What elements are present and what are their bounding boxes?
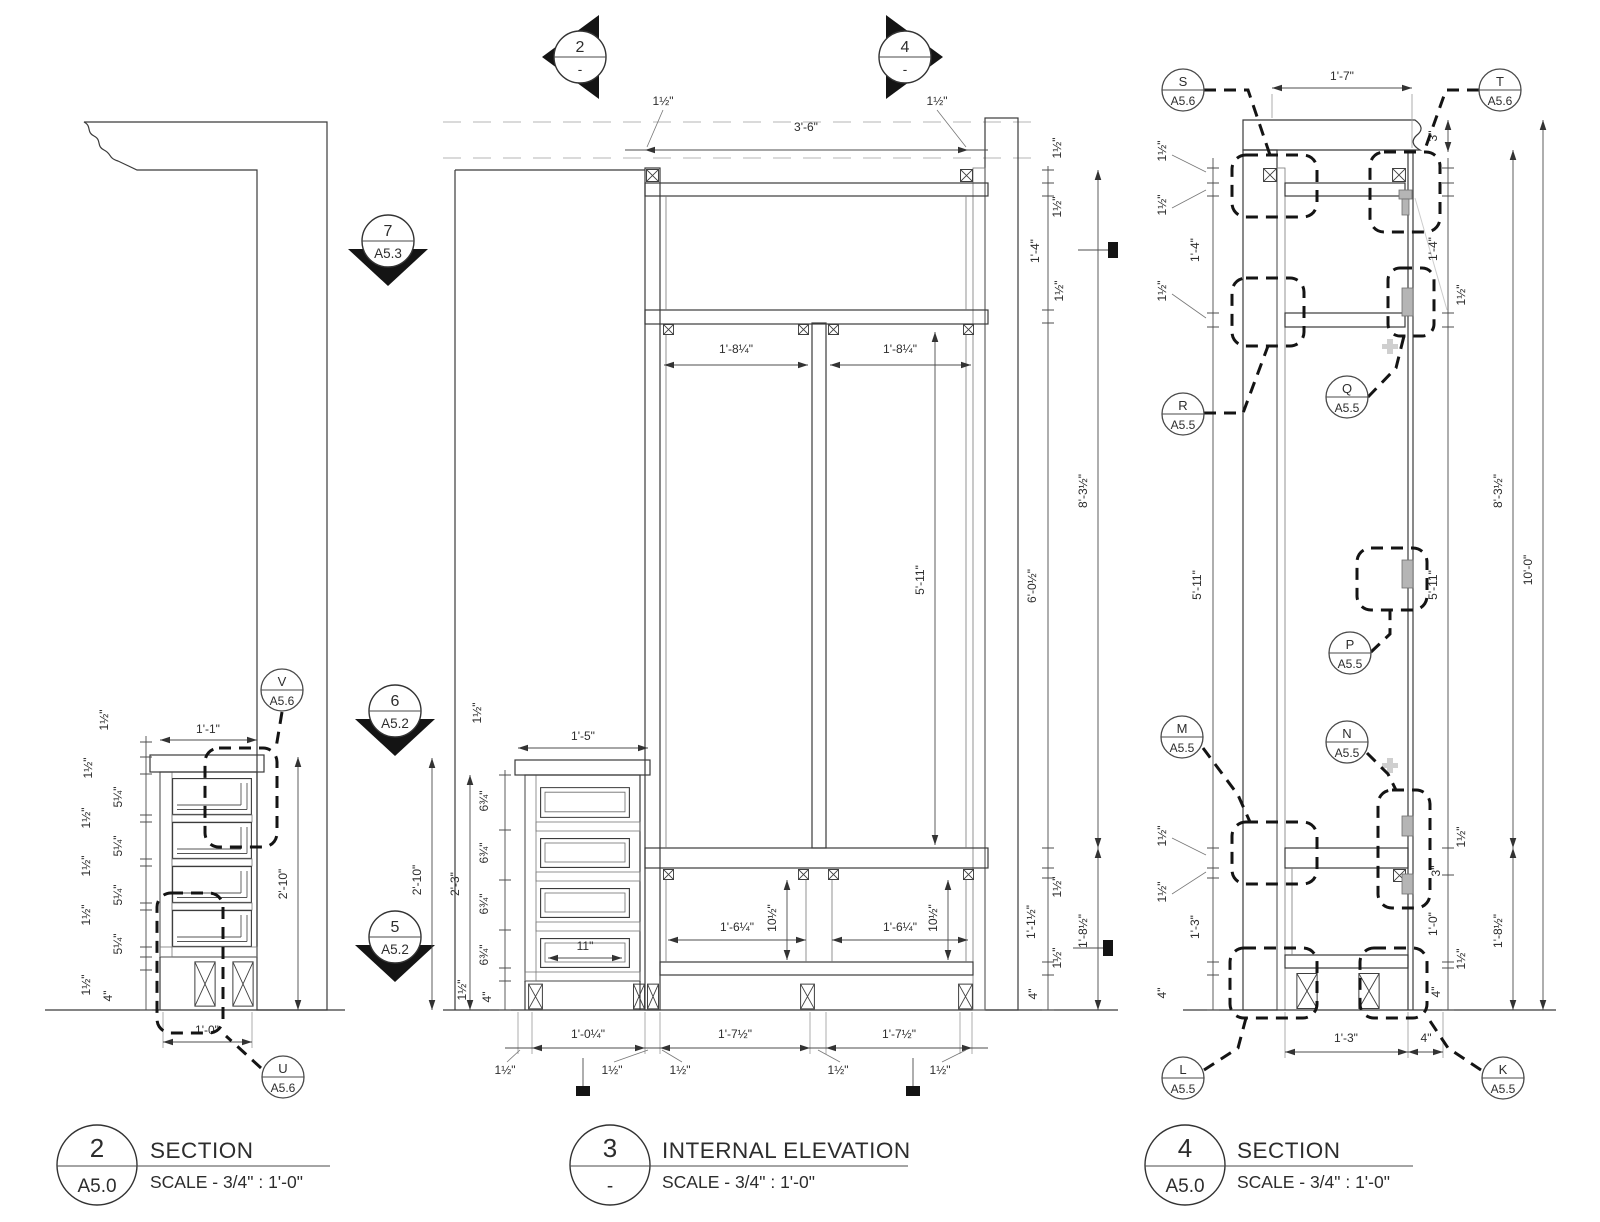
dim-label: 6¾"	[477, 843, 491, 864]
marker-sheet: A5.2	[381, 942, 409, 957]
dim-label: 1'-7½"	[718, 1027, 752, 1041]
dim-label: 8'-3½"	[1491, 474, 1505, 508]
bubble-sheet: A5.5	[1171, 418, 1196, 432]
dim-label: 1½"	[602, 1063, 623, 1077]
cabinet-front-stile	[160, 772, 172, 957]
dim-label: 1½"	[1454, 827, 1468, 848]
dim-label: 4"	[1155, 988, 1169, 999]
dim-label: 8'-3½"	[1076, 474, 1090, 508]
detail-bubble-N: N A5.5	[1326, 721, 1368, 763]
dim-label: 5'-11"	[1190, 570, 1204, 600]
dim-label: 4"	[101, 991, 115, 1002]
dim-label: 1½"	[495, 1063, 516, 1077]
callout-leader	[276, 712, 282, 748]
bubble-sheet: A5.5	[1338, 657, 1363, 671]
dim-label: 5¼"	[111, 787, 125, 808]
dim-label: 10½"	[765, 904, 779, 932]
dim-label: 2'-3"	[448, 872, 462, 896]
center-post	[812, 323, 826, 848]
dim-label: 1½"	[1454, 949, 1468, 970]
dim-label: 1½"	[1155, 882, 1169, 903]
left-section-drawing: 1'-1" 1½" 1½" 5¼" 1½" 5¼" 1½" 5¼" 1½" 5¼…	[45, 122, 345, 1098]
drawing-scale: SCALE - 3/4" : 1'-0"	[150, 1172, 303, 1192]
closet-left-stile	[645, 168, 660, 1010]
callout-leader	[1371, 610, 1390, 652]
dim-label: 1½"	[653, 94, 674, 108]
bubble-letter: T	[1496, 74, 1504, 89]
dim-label: 5¼"	[111, 885, 125, 906]
hinge-hardware	[1382, 339, 1398, 773]
drawing-title: SECTION	[150, 1138, 254, 1163]
dim-label: 1'-7"	[1330, 69, 1354, 83]
dim-label: 1½"	[1155, 141, 1169, 162]
dim-label: 1'-8¼"	[883, 342, 917, 356]
dim-label: 1½"	[97, 710, 111, 731]
detail-bubble-U: U A5.6	[262, 1056, 304, 1098]
bench-cabinet-counter	[515, 760, 650, 775]
dim-label: 1'-8½"	[1491, 914, 1505, 948]
detail-bubble-R: R A5.5	[1162, 393, 1204, 435]
dim-label: 1½"	[1155, 195, 1169, 216]
dim-label: 6¾"	[477, 791, 491, 812]
internal-elevation-drawing: 2 - 4 - 7 A5.3 6 A5.2 5 A5.2	[348, 15, 1118, 1096]
marker-sheet: A5.3	[374, 246, 402, 261]
drawing-title: INTERNAL ELEVATION	[662, 1138, 911, 1163]
hinge	[1402, 560, 1413, 588]
dim-label: 1'-1"	[196, 722, 220, 736]
marker-number: 6	[391, 693, 400, 710]
bubble-sheet: A5.6	[1488, 94, 1513, 108]
dim-label: 1'-4"	[1426, 237, 1440, 261]
drawing-canvas: 1'-1" 1½" 1½" 5¼" 1½" 5¼" 1½" 5¼" 1½" 5¼…	[0, 0, 1600, 1222]
bubble-letter: L	[1179, 1062, 1186, 1077]
dim-label: 1½"	[1050, 197, 1064, 218]
back-panel	[1277, 168, 1285, 1010]
section-marker-4: 4 -	[879, 15, 943, 99]
dim-label: 2'-10"	[410, 865, 424, 896]
drawing-sheet: 1'-1" 1½" 1½" 5¼" 1½" 5¼" 1½" 5¼" 1½" 5¼…	[0, 0, 1600, 1222]
dim-label: 1½"	[79, 905, 93, 926]
title-block-section-4: 4 A5.0 SECTION SCALE - 3/4" : 1'-0"	[1145, 1125, 1413, 1205]
room-corner-lines	[455, 170, 645, 1010]
top-rail	[1285, 183, 1405, 196]
callout-leader	[226, 1036, 261, 1068]
marker-number: 7	[384, 223, 393, 240]
dim-label: 1½"	[1050, 948, 1064, 969]
dim-label: 10'-0"	[1521, 555, 1535, 586]
dim-label: 1½"	[927, 94, 948, 108]
callout-leader	[1424, 90, 1479, 152]
section-marker-7: 7 A5.3	[348, 215, 428, 286]
detail-callout-region	[1357, 548, 1427, 610]
dim-label: 1½"	[1155, 826, 1169, 847]
bubble-sheet: A5.6	[1171, 94, 1196, 108]
dim-label: 1½"	[1155, 281, 1169, 302]
right-section-drawing: 1'-7" 3" 1½" 1½" 1'-4" 1½" 5'-11" 1½" 1½…	[1155, 69, 1556, 1099]
bubble-letter: Q	[1342, 381, 1352, 396]
detail-callout-region	[1232, 155, 1317, 217]
dim-label: 1½"	[79, 808, 93, 829]
bubble-sheet: A5.5	[1335, 401, 1360, 415]
marker-number: 4	[901, 39, 910, 56]
dim-label: 3'-6"	[794, 120, 818, 134]
dim-label: 5¼"	[111, 934, 125, 955]
dim-label: 4"	[1421, 1031, 1432, 1045]
title-block-section-2: 2 A5.0 SECTION SCALE - 3/4" : 1'-0"	[57, 1125, 330, 1205]
drawer-front	[541, 889, 630, 918]
dim-label: 1'-1½"	[1024, 905, 1038, 939]
toe-blocking	[1297, 974, 1317, 1009]
dim-label: 1'-0"	[1426, 912, 1440, 936]
dim-label: 1'-0¼"	[571, 1027, 605, 1041]
toe-blocking	[233, 962, 253, 1006]
dim-label: 4"	[1026, 989, 1040, 1000]
drawing-sheet: -	[607, 1176, 613, 1197]
drawing-title: SECTION	[1237, 1138, 1341, 1163]
drawing-sheet: A5.0	[1165, 1176, 1204, 1197]
marker-sheet: -	[903, 62, 908, 77]
detail-bubble-P: P A5.5	[1329, 632, 1371, 674]
dim-label: 1½"	[1052, 281, 1066, 302]
bubble-letter: R	[1178, 398, 1187, 413]
dim-label: 1½"	[79, 975, 93, 996]
bubble-sheet: A5.6	[270, 694, 295, 708]
bubble-sheet: A5.5	[1170, 741, 1195, 755]
dim-label: 5'-11"	[913, 565, 927, 595]
drawer-box	[173, 867, 252, 903]
ceiling-hatch	[1243, 120, 1421, 150]
drawer-front	[541, 788, 630, 818]
title-block-elevation-3: 3 - INTERNAL ELEVATION SCALE - 3/4" : 1'…	[570, 1125, 911, 1205]
detail-bubble-K: K A5.5	[1482, 1057, 1524, 1099]
dim-label: 1½"	[930, 1063, 951, 1077]
dim-label: 1½"	[81, 758, 95, 779]
filler-board	[973, 168, 985, 1010]
dim-label: 1'-4"	[1188, 238, 1202, 262]
dim-label: 1'-8¼"	[719, 342, 753, 356]
detail-bubble-M: M A5.5	[1161, 716, 1203, 758]
bubble-sheet: A5.5	[1171, 1082, 1196, 1096]
dim-label: 1½"	[828, 1063, 849, 1077]
top-rail	[645, 183, 988, 196]
section-marker-5: 5 A5.2	[355, 911, 435, 982]
dim-label: 1'-3"	[1334, 1031, 1358, 1045]
bubble-sheet: A5.5	[1335, 746, 1360, 760]
detail-callout-region	[1232, 822, 1317, 884]
bubble-letter: S	[1179, 74, 1188, 89]
dim-label: 1½"	[470, 703, 484, 724]
dim-label: 4"	[1429, 987, 1443, 998]
bubble-letter: P	[1346, 637, 1355, 652]
dim-label: 6¾"	[477, 894, 491, 915]
dim-label: 1½"	[670, 1063, 691, 1077]
dim-label: 6'-0½"	[1025, 569, 1039, 603]
drawer-front	[541, 839, 630, 868]
dim-label: 1'-6¼"	[883, 920, 917, 934]
detail-bubble-V: V A5.6	[261, 669, 303, 711]
callout-leader	[1204, 90, 1270, 155]
callout-leader	[1428, 1018, 1481, 1070]
detail-bubble-T: T A5.6	[1479, 69, 1521, 111]
dim-label: 1½"	[79, 856, 93, 877]
dim-label: 1½"	[1454, 285, 1468, 306]
toe-blocking	[1359, 974, 1379, 1009]
dim-label: 4"	[480, 992, 494, 1003]
dim-label: 1½"	[1050, 877, 1064, 898]
dim-label: 2'-10"	[276, 869, 290, 900]
drawer-box	[173, 911, 252, 947]
toe-blocking	[195, 962, 215, 1006]
dim-label: 1½"	[1050, 138, 1064, 159]
callout-leader	[1204, 1018, 1246, 1070]
dim-label: 1'-4"	[1028, 239, 1042, 263]
detail-bubble-L: L A5.5	[1162, 1057, 1204, 1099]
bubble-letter: U	[278, 1061, 287, 1076]
bench-bottom-rail	[660, 962, 973, 975]
hinge	[1402, 288, 1413, 316]
dim-label: 1'-5"	[571, 729, 595, 743]
cut-plane-flag	[576, 242, 1118, 1096]
drawing-number: 4	[1178, 1133, 1192, 1163]
drawing-number: 3	[603, 1133, 617, 1163]
bubble-letter: N	[1342, 726, 1351, 741]
drawer-box	[173, 823, 252, 859]
detail-bubble-Q: Q A5.5	[1326, 376, 1368, 418]
bench-top	[1285, 848, 1408, 868]
marker-sheet: A5.2	[381, 716, 409, 731]
marker-number: 2	[576, 39, 585, 56]
drawing-scale: SCALE - 3/4" : 1'-0"	[1237, 1172, 1390, 1192]
drawing-scale: SCALE - 3/4" : 1'-0"	[662, 1172, 815, 1192]
bubble-letter: M	[1177, 721, 1188, 736]
dim-label: 1'-6¼"	[720, 920, 754, 934]
drawing-sheet: A5.0	[77, 1176, 116, 1197]
dim-label: 5¼"	[111, 836, 125, 857]
drawer-box	[173, 779, 252, 815]
section-marker-2: 2 -	[542, 15, 606, 99]
marker-sheet: -	[578, 62, 583, 77]
hinge	[1402, 874, 1413, 894]
section-marker-6: 6 A5.2	[355, 685, 435, 756]
dim-label: 1'-3"	[1188, 915, 1202, 939]
dim-label: 11"	[577, 939, 594, 953]
dim-label: 1'-7½"	[882, 1027, 916, 1041]
bubble-sheet: A5.6	[271, 1081, 296, 1095]
wall-hatch	[985, 118, 1018, 1010]
dim-label: 1½"	[455, 980, 469, 1001]
bubble-sheet: A5.5	[1491, 1082, 1516, 1096]
callout-leader	[1204, 346, 1268, 413]
bench-bottom	[1285, 955, 1408, 968]
upper-shelf	[645, 310, 988, 324]
dim-label: 10½"	[926, 904, 940, 932]
bench-top	[645, 848, 988, 868]
marker-number: 5	[391, 919, 400, 936]
drawing-number: 2	[90, 1133, 104, 1163]
hinge	[1402, 816, 1413, 836]
bubble-letter: V	[278, 674, 287, 689]
bubble-letter: K	[1499, 1062, 1508, 1077]
dim-label: 6¾"	[477, 945, 491, 966]
dim-label: 1'-8½"	[1076, 914, 1090, 948]
detail-bubble-S: S A5.6	[1162, 69, 1204, 111]
